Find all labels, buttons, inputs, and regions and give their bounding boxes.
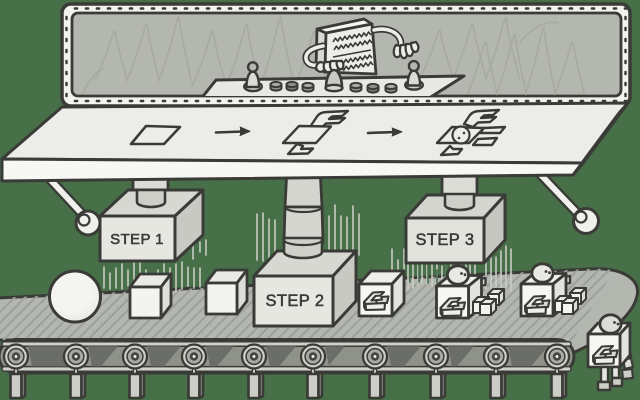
svg-text:STEP 3: STEP 3	[416, 231, 475, 249]
svg-text:STEP 1: STEP 1	[110, 231, 164, 248]
svg-text:STEP 2: STEP 2	[266, 292, 325, 310]
